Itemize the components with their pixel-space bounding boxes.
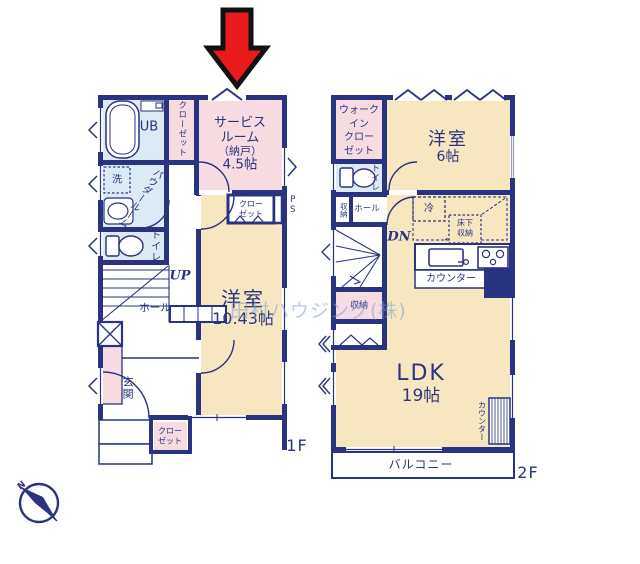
room-label-toilet-2f: トイレ (369, 164, 379, 193)
room-label-hall-1f: ホール (139, 303, 171, 315)
room-label-pipe-space: PS (287, 195, 297, 215)
room-label-kitchen-counter: カウンター (426, 273, 476, 284)
room-label-unit-bath: UB (140, 121, 158, 136)
floorplan-page: N 田村ハウジング(株) UB クローゼット サービス ルーム （納戸） 4.5… (0, 0, 640, 564)
watermark: 田村ハウジング(株) (230, 296, 407, 323)
room-label-fridge: 冷 (424, 203, 434, 214)
room-label-closet-mid: クロー ゼット (239, 199, 263, 218)
room-label-service-room: サービス ルーム （納戸） 4.5帖 (214, 117, 266, 174)
room-label-closet-bottom: クロー ゼット (158, 426, 182, 445)
compass-icon (12, 476, 64, 528)
room-label-entrance: 玄関 (121, 376, 133, 400)
floor1-label: 1F (286, 437, 307, 455)
room-label-bedroom-2f: 洋室 6帖 (428, 130, 468, 166)
stairs-up-label: UP (169, 270, 190, 285)
room-label-closet-top: クローゼット (176, 101, 186, 158)
room-label-toilet-1f: トイレ (148, 230, 159, 263)
room-label-storage-upper: 収納 (339, 203, 347, 218)
stairs-dn-label: DN (387, 231, 410, 246)
room-label-ldk: LDK 19帖 (396, 362, 446, 406)
floor2-label: 2F (517, 464, 538, 482)
room-label-underfloor: 床下 収納 (457, 219, 473, 240)
room-label-wic: ウォーク イン クロー ゼット (339, 104, 379, 158)
room-label-side-counter: カウンター (477, 401, 486, 441)
room-label-laundry: 洗 (112, 174, 122, 185)
room-label-balcony: バルコニー (389, 458, 454, 471)
floorplan-graphics (0, 0, 640, 564)
direction-arrow-icon (198, 4, 278, 94)
room-label-hall-2f: ホール (354, 205, 380, 215)
